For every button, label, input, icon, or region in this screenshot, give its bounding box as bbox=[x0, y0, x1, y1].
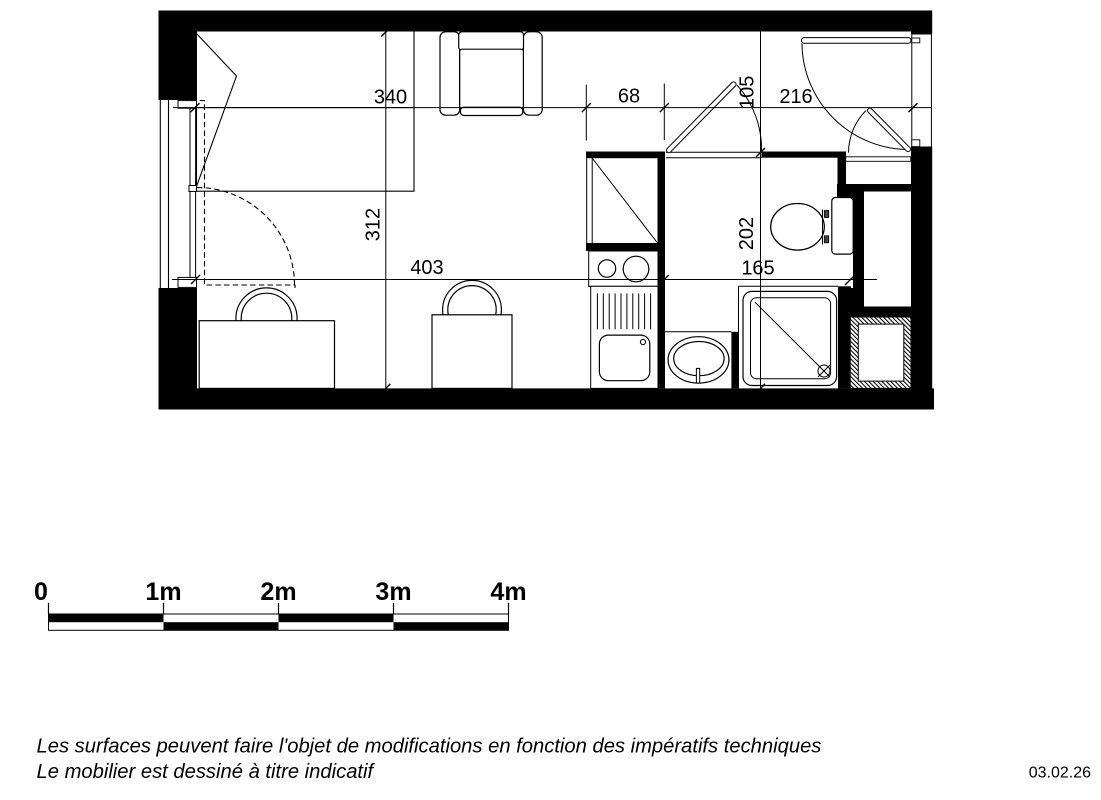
svg-text:0: 0 bbox=[34, 578, 48, 606]
svg-text:2m: 2m bbox=[260, 578, 296, 606]
svg-text:4m: 4m bbox=[490, 578, 526, 606]
svg-text:105: 105 bbox=[737, 76, 759, 109]
svg-text:1m: 1m bbox=[145, 578, 181, 606]
svg-text:165: 165 bbox=[741, 258, 774, 280]
svg-text:Le mobilier est dessiné à titr: Le mobilier est dessiné à titre indicati… bbox=[37, 761, 376, 783]
svg-text:03.02.26: 03.02.26 bbox=[1029, 765, 1091, 782]
svg-text:68: 68 bbox=[618, 86, 640, 108]
svg-text:216: 216 bbox=[779, 86, 812, 108]
svg-text:312: 312 bbox=[363, 208, 385, 241]
svg-text:Les surfaces peuvent faire l'o: Les surfaces peuvent faire l'objet de mo… bbox=[37, 736, 822, 758]
svg-text:340: 340 bbox=[374, 87, 407, 109]
svg-text:202: 202 bbox=[736, 217, 758, 250]
svg-text:403: 403 bbox=[410, 257, 443, 279]
svg-text:3m: 3m bbox=[375, 578, 411, 606]
